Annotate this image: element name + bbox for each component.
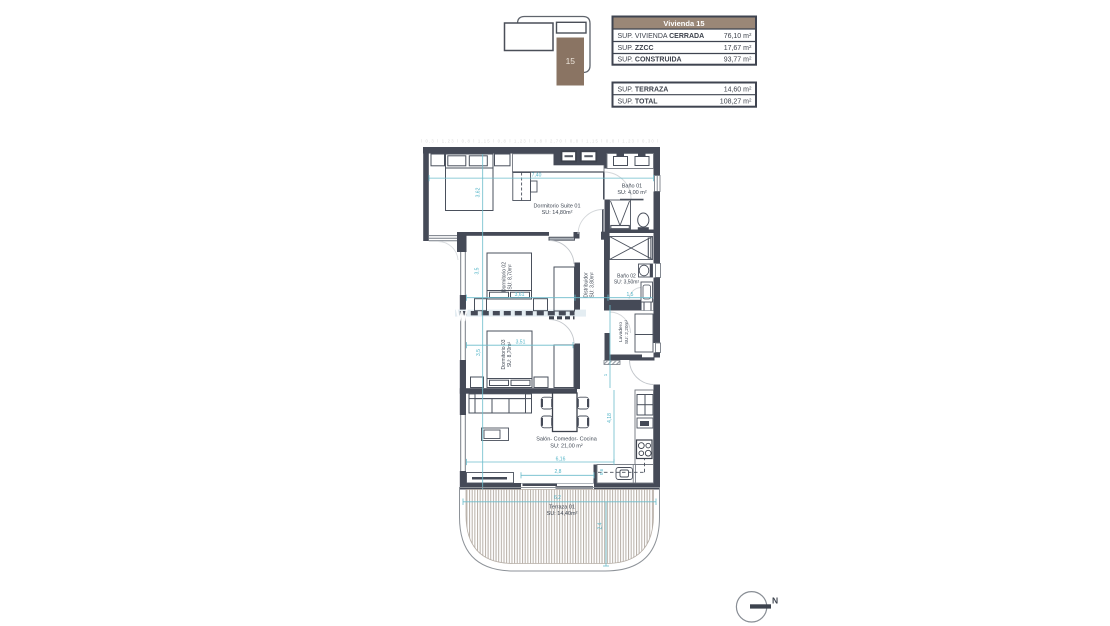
svg-text:SUP. ZZCC: SUP. ZZCC xyxy=(618,45,654,52)
svg-text:Baño 01: Baño 01 xyxy=(622,184,643,190)
svg-text:SU: 4,00 m²: SU: 4,00 m² xyxy=(617,190,647,196)
svg-text:93,77 m2: 93,77 m2 xyxy=(724,56,752,64)
svg-text:SUP. CONSTRUIDA: SUP. CONSTRUIDA xyxy=(618,57,682,64)
svg-text:3,51: 3,51 xyxy=(516,340,526,346)
svg-text:6,16: 6,16 xyxy=(556,456,566,462)
svg-text:17,67 m2: 17,67 m2 xyxy=(724,44,752,52)
svg-text:7,40: 7,40 xyxy=(532,173,542,179)
svg-text:1,5: 1,5 xyxy=(627,292,634,298)
svg-text:l 0,3 l 1,23 l 0,8 l 1,15 l 0,: l 0,3 l 1,23 l 0,8 l 1,15 l 0,8 l 1,23 l… xyxy=(421,139,659,144)
svg-text:4,18: 4,18 xyxy=(607,413,613,423)
svg-text:Vivienda 15: Vivienda 15 xyxy=(663,19,704,28)
svg-text:Lavadero: Lavadero xyxy=(618,322,624,342)
svg-text:SUP. VIVIENDA CERRADA: SUP. VIVIENDA CERRADA xyxy=(618,33,705,40)
svg-text:Salón- Comedor- Cocina: Salón- Comedor- Cocina xyxy=(536,437,597,443)
svg-text:3,5: 3,5 xyxy=(475,267,481,274)
svg-text:SU: 14,40m²: SU: 14,40m² xyxy=(547,511,578,517)
svg-text:Dormitorio Suite 01: Dormitorio Suite 01 xyxy=(533,204,580,210)
svg-text:3,5: 3,5 xyxy=(476,349,482,356)
svg-text:3,61: 3,61 xyxy=(515,292,525,298)
svg-text:15: 15 xyxy=(566,56,576,66)
svg-text:N: N xyxy=(772,596,778,606)
svg-text:SU: 3,80m²: SU: 3,80m² xyxy=(590,272,596,298)
svg-text:SU: 21,00 m²: SU: 21,00 m² xyxy=(550,443,583,449)
svg-text:SUP. TERRAZA: SUP. TERRAZA xyxy=(618,86,669,93)
svg-text:SU: 3,50m²: SU: 3,50m² xyxy=(614,280,640,286)
svg-text:SU: 14,80m²: SU: 14,80m² xyxy=(542,210,573,216)
svg-text:SU: 8,70m²: SU: 8,70m² xyxy=(508,264,514,290)
svg-text:2,4: 2,4 xyxy=(598,522,604,529)
svg-text:3,62: 3,62 xyxy=(476,187,482,197)
svg-text:0,6: 0,6 xyxy=(599,468,604,475)
svg-text:6,2: 6,2 xyxy=(554,495,561,501)
svg-text:76,10 m2: 76,10 m2 xyxy=(724,32,752,40)
svg-text:SUP. TOTAL: SUP. TOTAL xyxy=(618,98,659,105)
svg-text:2,8: 2,8 xyxy=(555,469,562,475)
svg-text:Terraza 01: Terraza 01 xyxy=(549,504,575,510)
svg-text:14,60 m2: 14,60 m2 xyxy=(724,85,752,93)
svg-text:SU: 2,20m²: SU: 2,20m² xyxy=(624,319,630,344)
svg-text:108,27 m2: 108,27 m2 xyxy=(720,97,752,105)
